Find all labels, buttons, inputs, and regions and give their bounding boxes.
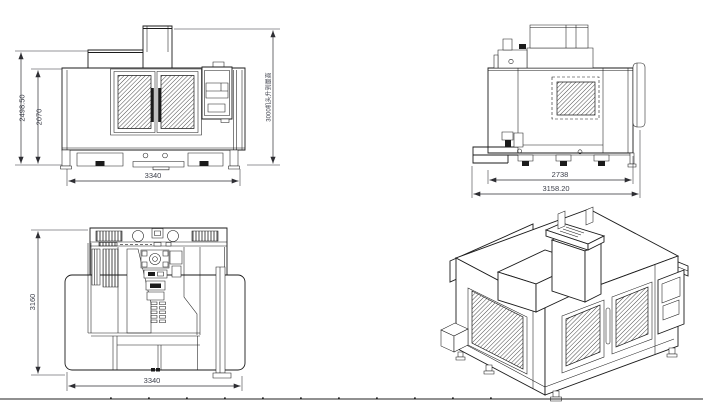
iso-control-panel <box>658 270 684 334</box>
dim-label-front-width: 3340 <box>145 171 162 180</box>
plan-view: 3160 3340 <box>28 228 245 391</box>
plan-side-rail <box>216 267 225 373</box>
dim-label-plan-depth: 3160 <box>28 294 37 311</box>
dim-label-front-overall-height: 2498.50 <box>18 94 27 121</box>
front-machine-base <box>61 150 240 170</box>
dim-label-plan-width: 3340 <box>144 376 161 385</box>
front-dim-enclosure-height: 2070 <box>31 69 62 164</box>
iso-door-handle <box>606 308 610 344</box>
front-view: 2498.50 2070 3000机头升到最高 3340 <box>15 26 280 186</box>
pendant-screen <box>206 83 228 98</box>
front-dim-width: 3340 <box>67 169 240 186</box>
side-spindle-head <box>498 50 527 68</box>
machine-drawing: 2498.50 2070 3000机头升到最高 3340 <box>0 0 703 409</box>
dim-label-front-enclosure-height: 2070 <box>35 109 44 126</box>
front-door-assembly <box>111 69 202 135</box>
plan-spindle <box>150 254 161 265</box>
isometric-view <box>441 207 688 401</box>
side-rear-cover <box>633 63 645 127</box>
side-view: 2738 3158.20 <box>472 25 645 198</box>
drawing-frame-border <box>0 397 703 399</box>
drawing-canvas: 2498.50 2070 3000机头升到最高 3340 <box>0 0 703 409</box>
pendant-keypad <box>208 104 225 112</box>
front-left-door-handle <box>151 88 154 122</box>
iso-chip-chute <box>441 323 468 360</box>
dim-label-side-overall-width: 3158.20 <box>542 184 569 193</box>
front-right-door-vent <box>161 76 194 129</box>
dim-label-side-body-width: 2738 <box>552 170 569 179</box>
front-control-pendant <box>202 62 232 123</box>
front-right-door-handle <box>158 88 161 122</box>
side-vent-panel <box>552 77 599 119</box>
front-left-door-vent <box>118 76 151 129</box>
dim-label-front-head-raised: 3000机头升到最高 <box>265 72 273 121</box>
